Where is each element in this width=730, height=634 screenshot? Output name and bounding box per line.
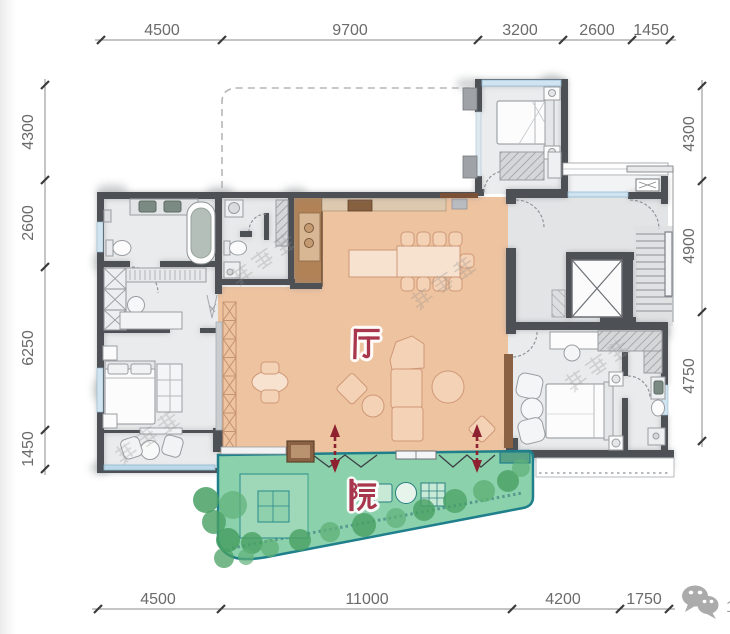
svg-text:11000: 11000: [345, 591, 388, 608]
svg-text:2600: 2600: [20, 205, 37, 241]
svg-text:1450: 1450: [633, 22, 669, 39]
svg-text:1: 1: [726, 599, 730, 616]
svg-text:4500: 4500: [144, 22, 180, 39]
svg-text:4300: 4300: [681, 116, 698, 152]
svg-text:1450: 1450: [20, 431, 37, 467]
svg-text:3200: 3200: [502, 22, 538, 39]
svg-text:4900: 4900: [681, 228, 698, 264]
svg-text:6250: 6250: [20, 330, 37, 366]
svg-text:4500: 4500: [140, 591, 176, 608]
svg-text:4200: 4200: [545, 591, 581, 608]
svg-text:4300: 4300: [20, 114, 37, 150]
svg-text:4750: 4750: [681, 358, 698, 394]
svg-text:9700: 9700: [332, 22, 368, 39]
svg-text:2600: 2600: [579, 22, 615, 39]
svg-text:1750: 1750: [626, 591, 662, 608]
